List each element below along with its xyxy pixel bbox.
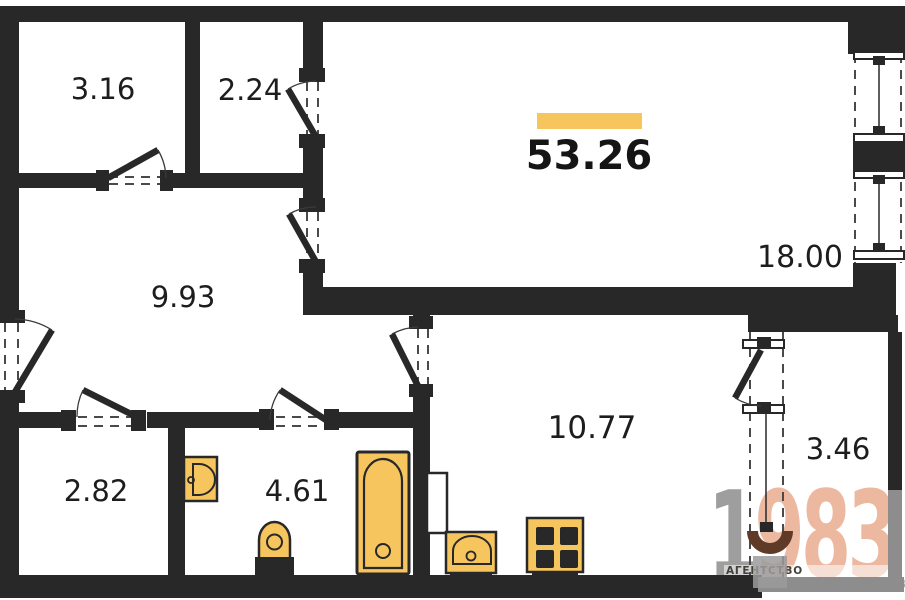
wall-left-upper	[0, 6, 19, 322]
kitchen-sink-icon	[446, 532, 496, 579]
wall-balcony-right	[888, 332, 902, 490]
balcony-door	[735, 337, 784, 413]
watermark-logo-mark	[747, 531, 793, 588]
wall-window-pier	[853, 142, 905, 172]
door-kitchen	[392, 334, 418, 386]
wall-top-right-corner	[848, 6, 905, 54]
balcony-window	[760, 413, 773, 532]
total-area-accent-bar	[537, 113, 642, 129]
area-label-wc: 2.82	[36, 474, 156, 508]
area-label-bathroom: 4.61	[237, 474, 357, 508]
bathroom-sink-icon	[184, 457, 217, 501]
wall-left-lower	[0, 398, 19, 578]
door-wc	[83, 390, 137, 417]
door-entrance	[15, 330, 52, 392]
door-jambs	[0, 68, 433, 431]
door-livingroom	[289, 214, 316, 262]
area-label-room-1: 3.16	[43, 72, 163, 106]
wall-hall-bottom-c	[337, 412, 430, 428]
wall-hall-bottom-b	[147, 412, 263, 428]
window-1	[854, 52, 904, 142]
wall-livingroom-left-b	[303, 140, 323, 202]
bathtub-icon	[357, 452, 409, 574]
duct-shaft	[427, 473, 447, 533]
area-label-hallway: 9.93	[123, 280, 243, 314]
wall-under-storeroom-left	[19, 173, 100, 188]
wall-livingroom-bottom	[303, 287, 855, 315]
door-panels	[15, 89, 418, 420]
area-label-room-2: 2.24	[190, 73, 310, 107]
door-swing-arcs	[15, 81, 418, 420]
stove-icon	[527, 518, 583, 579]
area-label-balcony: 3.46	[778, 432, 898, 466]
floor-plan: 1983 АГЕНТСТВО НЕДВИЖИМОСТИ И ИНВЕСТИЦИЙ	[0, 0, 905, 600]
area-label-livingroom: 18.00	[735, 241, 865, 275]
door-storeroom1	[108, 150, 158, 178]
door-bathroom	[280, 390, 326, 420]
wall-under-storeroom-right	[168, 173, 310, 188]
wall-balcony-right-gray	[888, 490, 902, 588]
fixtures	[184, 452, 583, 579]
wall-livingroom-left-a	[303, 22, 323, 72]
total-area-label: 53.26	[519, 133, 659, 179]
wall-top	[0, 6, 860, 22]
toilet-icon	[255, 522, 294, 576]
wall-hall-bottom-a	[19, 412, 66, 428]
area-label-kitchen: 10.77	[527, 411, 657, 445]
wall-between-wc-bath	[168, 428, 185, 575]
wall-bottom	[0, 575, 762, 598]
